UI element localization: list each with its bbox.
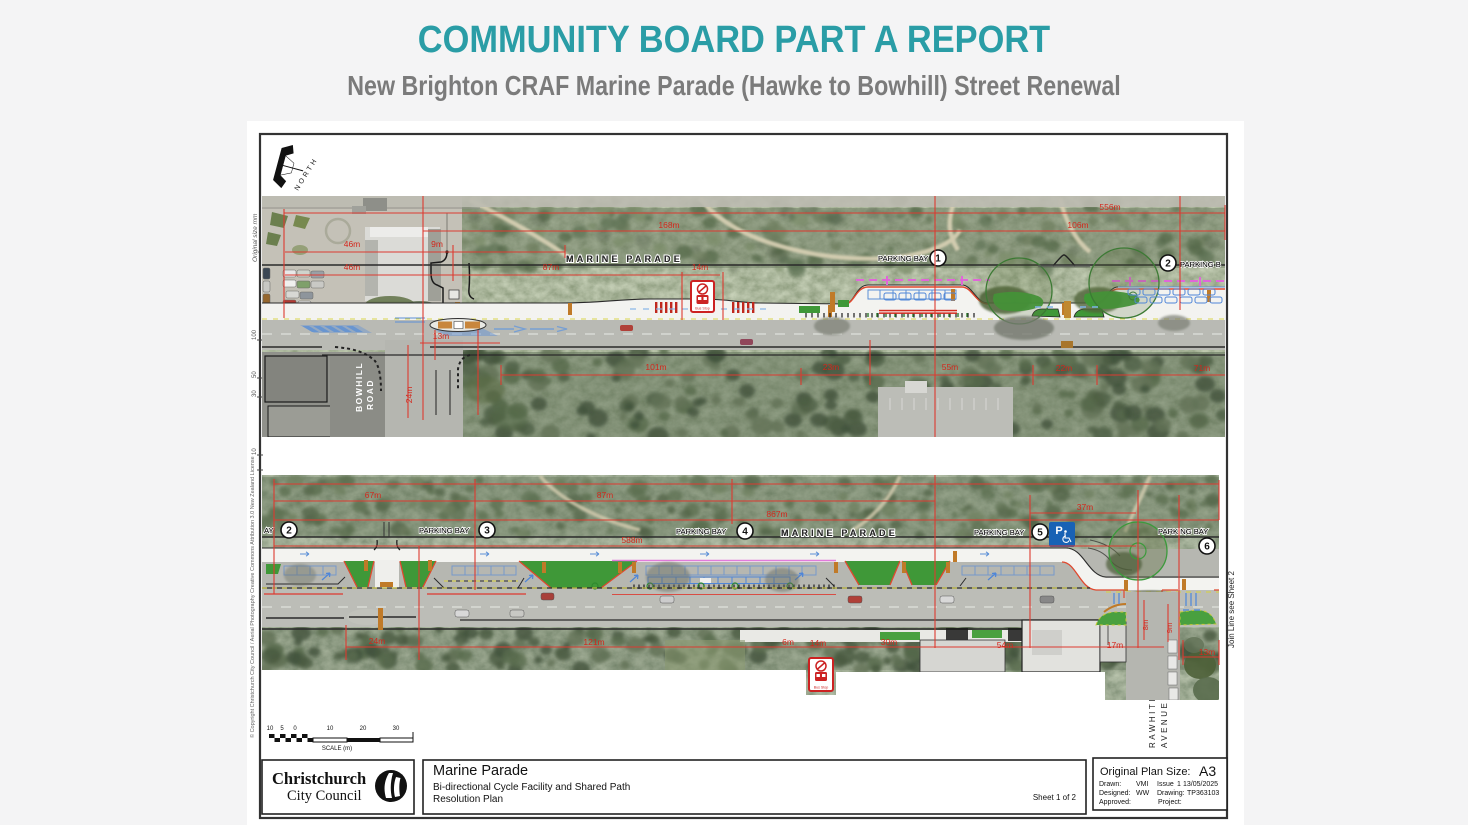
svg-text:13m: 13m [433,331,450,341]
svg-text:13/05/2025: 13/05/2025 [1183,781,1218,788]
svg-text:BOWHILL: BOWHILL [354,362,364,412]
svg-text:30: 30 [393,726,400,732]
svg-text:City Council: City Council [287,788,362,804]
svg-text:24m: 24m [404,387,414,404]
svg-text:Drawing:: Drawing: [1157,790,1185,797]
svg-text:Bus Stop: Bus Stop [814,686,829,690]
svg-text:6: 6 [1204,542,1210,553]
svg-text:3: 3 [484,526,490,537]
svg-text:168m: 168m [658,220,679,230]
svg-text:13m: 13m [1199,647,1216,657]
svg-text:101m: 101m [645,362,666,372]
svg-text:2: 2 [1165,259,1171,270]
svg-text:50: 50 [252,371,258,378]
svg-text:SCALE (m): SCALE (m) [322,746,352,752]
svg-text:Marine Parade: Marine Parade [433,763,528,779]
svg-text:22m: 22m [1056,363,1073,373]
svg-text:Bi-directional Cycle Facility: Bi-directional Cycle Facility and Shared… [433,782,630,793]
svg-text:Original size mm: Original size mm [252,213,259,262]
svg-text:87m: 87m [597,490,614,500]
svg-text:MARINE PARADE: MARINE PARADE [781,528,898,538]
svg-text:PARKING BAY: PARKING BAY [1158,527,1208,536]
svg-text:24m: 24m [369,636,386,646]
svg-text:PARKING BAY: PARKING BAY [419,526,469,535]
svg-text:9m: 9m [1165,623,1174,633]
svg-text:MARINE PARADE: MARINE PARADE [566,254,683,264]
svg-text:14m: 14m [692,262,709,272]
svg-text:PARKING BAY: PARKING BAY [974,528,1024,537]
svg-text:87m: 87m [543,262,560,272]
svg-text:PARKING B: PARKING B [1180,260,1221,269]
svg-text:10: 10 [252,448,258,455]
svg-text:55m: 55m [942,362,959,372]
svg-text:TP363103: TP363103 [1187,790,1219,797]
svg-text:WW: WW [1136,790,1150,797]
svg-text:Approved:: Approved: [1099,799,1131,806]
svg-text:9m: 9m [431,239,443,249]
svg-text:67m: 67m [365,490,382,500]
svg-text:54m: 54m [997,640,1014,650]
svg-text:AVENUE: AVENUE [1160,701,1169,748]
svg-text:867m: 867m [766,509,787,519]
svg-text:AY: AY [264,526,274,535]
svg-text:71m: 71m [1194,363,1211,373]
svg-text:Designed:: Designed: [1099,790,1131,797]
svg-text:VMI: VMI [1136,781,1149,788]
svg-text:106m: 106m [1067,220,1088,230]
svg-text:Christchurch: Christchurch [272,769,366,788]
svg-text:ROAD: ROAD [365,379,375,410]
svg-text:556m: 556m [1099,202,1120,212]
svg-text:10: 10 [267,726,274,732]
svg-text:46m: 46m [344,239,361,249]
svg-text:37m: 37m [1077,502,1094,512]
svg-text:Bus Stop: Bus Stop [695,307,710,311]
svg-text:17m: 17m [1107,640,1124,650]
svg-text:A3: A3 [1199,763,1216,779]
svg-text:4: 4 [742,527,748,538]
svg-text:14m: 14m [810,638,827,648]
svg-text:46m: 46m [344,262,361,272]
svg-text:2: 2 [286,526,292,537]
svg-text:6m: 6m [782,637,794,647]
svg-text:1: 1 [935,254,941,265]
svg-text:23m: 23m [823,362,840,372]
svg-text:Join Line see Sheet 2: Join Line see Sheet 2 [1227,571,1236,648]
svg-text:20: 20 [360,726,367,732]
svg-text:PARKING BAY: PARKING BAY [878,254,928,263]
svg-text:Original Plan Size:: Original Plan Size: [1100,766,1191,778]
svg-text:PARKING BAY: PARKING BAY [676,527,726,536]
svg-text:121m: 121m [583,637,604,647]
svg-text:1: 1 [1177,781,1181,788]
svg-text:P: P [1055,525,1062,537]
svg-text:10: 10 [327,726,334,732]
svg-text:Project:: Project: [1158,799,1182,806]
svg-text:8m: 8m [1141,620,1150,630]
svg-text:Resolution Plan: Resolution Plan [433,794,503,805]
svg-text:RAWHITI: RAWHITI [1148,697,1157,748]
svg-text:100: 100 [252,329,258,340]
svg-text:588m: 588m [621,535,642,545]
svg-text:5: 5 [1037,528,1043,539]
svg-text:Drawn:: Drawn: [1099,781,1121,788]
svg-text:30m: 30m [881,637,898,647]
svg-text:30: 30 [252,390,258,397]
svg-text:© Copyright Christchurch City: © Copyright Christchurch City Council / … [249,456,256,738]
svg-text:Issue: Issue [1157,781,1174,788]
svg-text:Sheet 1 of 2: Sheet 1 of 2 [1033,793,1077,802]
